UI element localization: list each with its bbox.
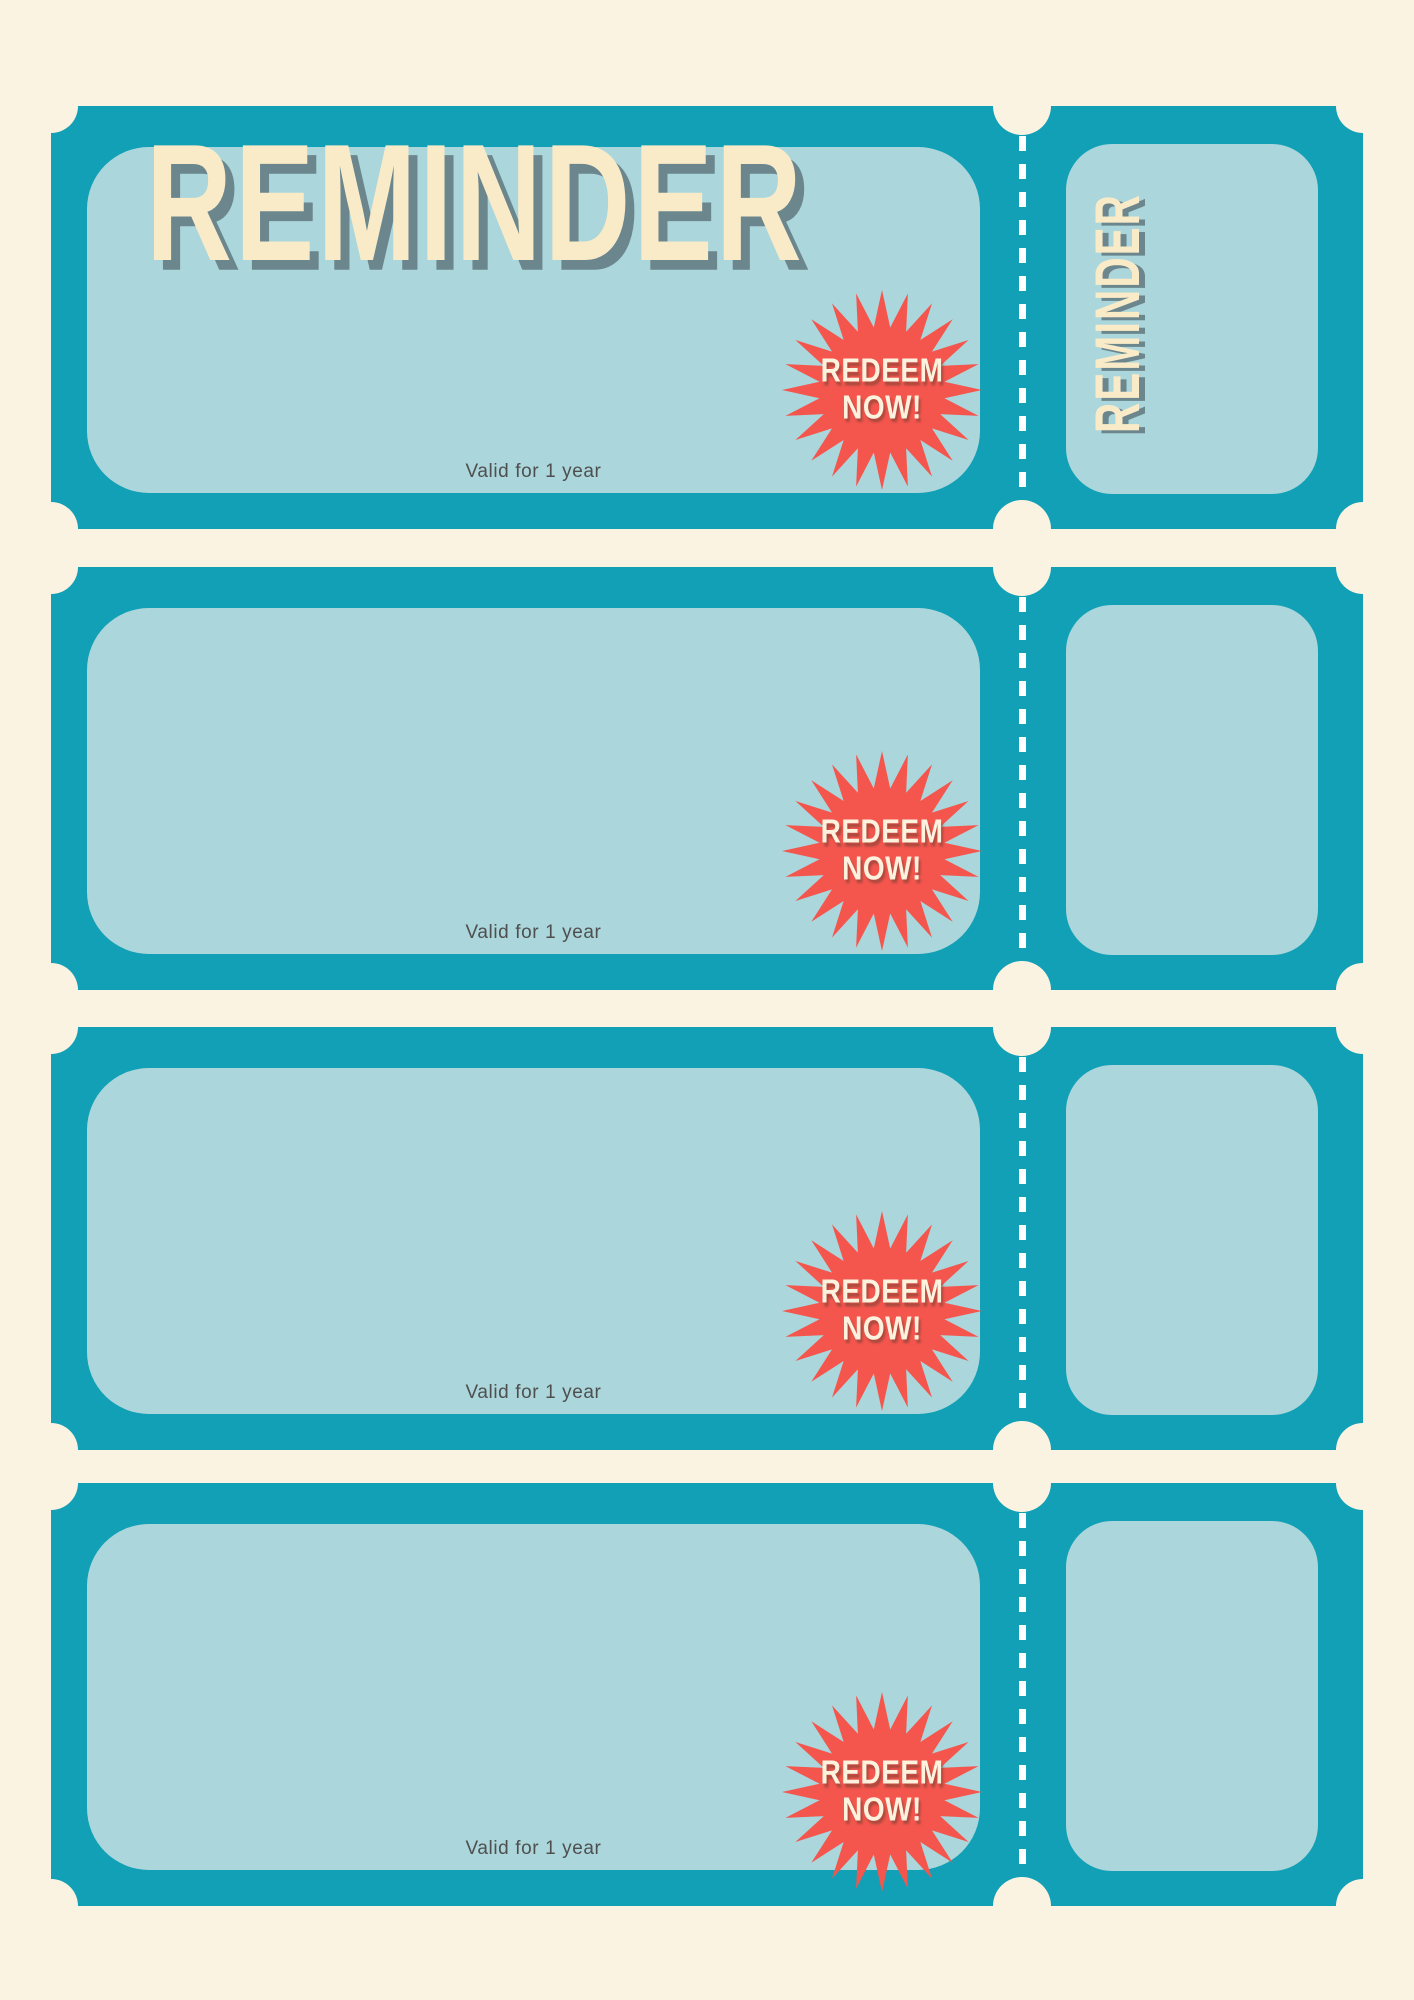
ticket-title: REMINDER [146, 120, 805, 287]
perforation-line [1019, 136, 1026, 499]
redeem-now-label: REDEEM NOW! [782, 272, 982, 508]
corner-notch [1336, 1000, 1390, 1054]
corner-notch [24, 79, 78, 133]
reminder-ticket-1: Valid for 1 year REMINDER REDEEM NOW! RE… [51, 106, 1363, 529]
ticket-stub-panel [1066, 1521, 1318, 1871]
perforation-notch [993, 1454, 1051, 1512]
ticket-stub-panel [1066, 605, 1318, 955]
reminder-ticket-3: Valid for 1 year REDEEM NOW! [51, 1027, 1363, 1450]
redeem-now-label: REDEEM NOW! [782, 733, 982, 969]
perforation-line [1019, 597, 1026, 960]
perforation-notch [993, 538, 1051, 596]
perforation-notch [993, 77, 1051, 135]
perforation-notch [993, 1877, 1051, 1935]
corner-notch [24, 1000, 78, 1054]
reminder-ticket-2: Valid for 1 year REDEEM NOW! [51, 567, 1363, 990]
corner-notch [24, 1879, 78, 1933]
corner-notch [1336, 1456, 1390, 1510]
corner-notch [24, 1456, 78, 1510]
redeem-now-label: REDEEM NOW! [782, 1193, 982, 1429]
reminder-ticket-4: Valid for 1 year REDEEM NOW! [51, 1483, 1363, 1906]
redeem-now-label: REDEEM NOW! [782, 1674, 982, 1910]
redeem-now-starburst-badge: REDEEM NOW! [782, 751, 982, 951]
stub-label: REMINDER [1070, 193, 1166, 433]
corner-notch [1336, 79, 1390, 133]
redeem-now-starburst-badge: REDEEM NOW! [782, 1692, 982, 1892]
redeem-now-starburst-badge: REDEEM NOW! [782, 290, 982, 490]
redeem-now-starburst-badge: REDEEM NOW! [782, 1211, 982, 1411]
perforation-line [1019, 1057, 1026, 1420]
corner-notch [24, 540, 78, 594]
perforation-line [1019, 1513, 1026, 1876]
corner-notch [1336, 1879, 1390, 1933]
corner-notch [1336, 540, 1390, 594]
ticket-stub-panel [1066, 1065, 1318, 1415]
perforation-notch [993, 998, 1051, 1056]
